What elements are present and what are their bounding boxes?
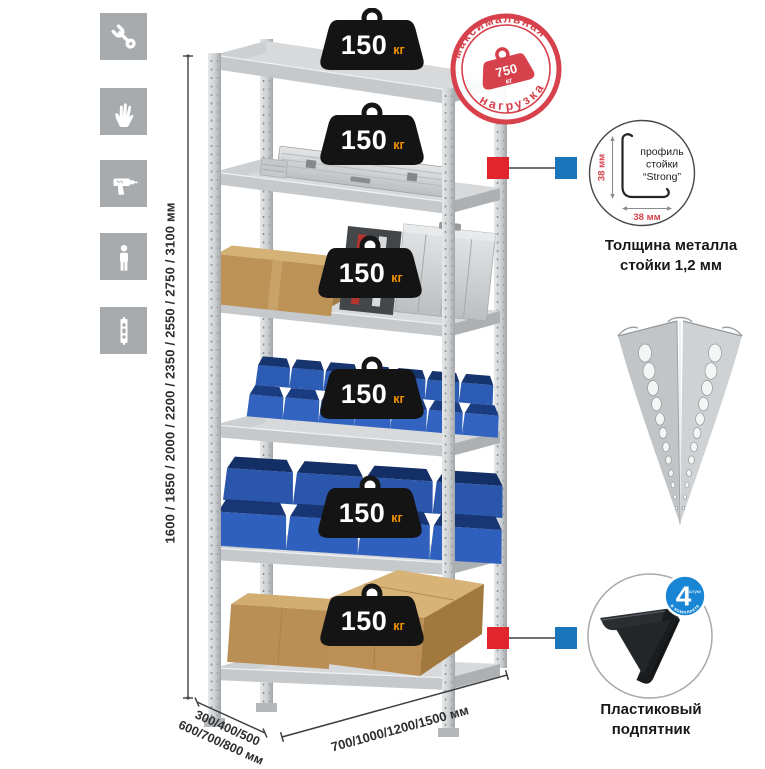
callout-connector-bottom <box>487 624 579 652</box>
svg-text:150: 150 <box>339 258 386 288</box>
foot-caption: Пластиковый подпятник <box>576 700 726 739</box>
max-load-stamp: максимальная нагрузка 750 кг <box>447 10 565 128</box>
work-gloves-icon <box>100 88 147 135</box>
perforated-corner-post-image <box>598 306 762 536</box>
svg-text:38 мм: 38 мм <box>597 154 608 181</box>
callout-connector-top <box>487 154 579 182</box>
person-icon <box>100 233 147 280</box>
svg-text:кг: кг <box>393 392 404 406</box>
svg-text:150: 150 <box>341 125 388 155</box>
svg-text:150: 150 <box>341 30 388 60</box>
svg-text:кг: кг <box>391 511 402 525</box>
svg-text:150: 150 <box>341 379 388 409</box>
rack-front-left-post <box>204 53 225 727</box>
wrench-icon <box>100 13 147 60</box>
connector-red-square <box>487 627 509 649</box>
svg-text:штуки: штуки <box>689 589 701 594</box>
svg-text:кг: кг <box>393 43 404 57</box>
connector-blue-square <box>555 157 577 179</box>
height-dimension-label: 1600 / 1850 / 2000 / 2200 / 2350 / 2550 … <box>163 202 178 543</box>
load-badge-1: 150 кг <box>320 10 423 70</box>
svg-text:кг: кг <box>391 271 402 285</box>
included-count-badge: 4 штуки в комплекте <box>665 576 706 617</box>
svg-text:кг: кг <box>393 619 404 633</box>
svg-text:стойки: стойки <box>646 159 678 171</box>
svg-text:профиль: профиль <box>640 146 684 158</box>
svg-text:кг: кг <box>393 138 404 152</box>
metal-stack <box>260 158 288 178</box>
connector-blue-square <box>555 627 577 649</box>
svg-text:4: 4 <box>676 581 692 612</box>
profile-caption: Толщина металла стойки 1,2 мм <box>583 236 759 275</box>
connector-red-square <box>487 157 509 179</box>
load-badge-2: 150 кг <box>320 105 423 165</box>
drill-icon <box>100 160 147 207</box>
svg-text:150: 150 <box>341 606 388 636</box>
svg-text:38 мм: 38 мм <box>633 212 660 223</box>
svg-text:“Strong”: “Strong” <box>643 171 681 183</box>
plastic-foot-detail: 4 штуки в комплекте <box>585 571 717 703</box>
svg-text:150: 150 <box>339 498 386 528</box>
perforated-post-icon <box>100 307 147 354</box>
profile-section-detail: 38 мм 38 мм профиль стойки “Strong” <box>586 117 698 229</box>
infographic-page: { "left_icons": { "items": [ {"icon": "w… <box>0 0 765 765</box>
